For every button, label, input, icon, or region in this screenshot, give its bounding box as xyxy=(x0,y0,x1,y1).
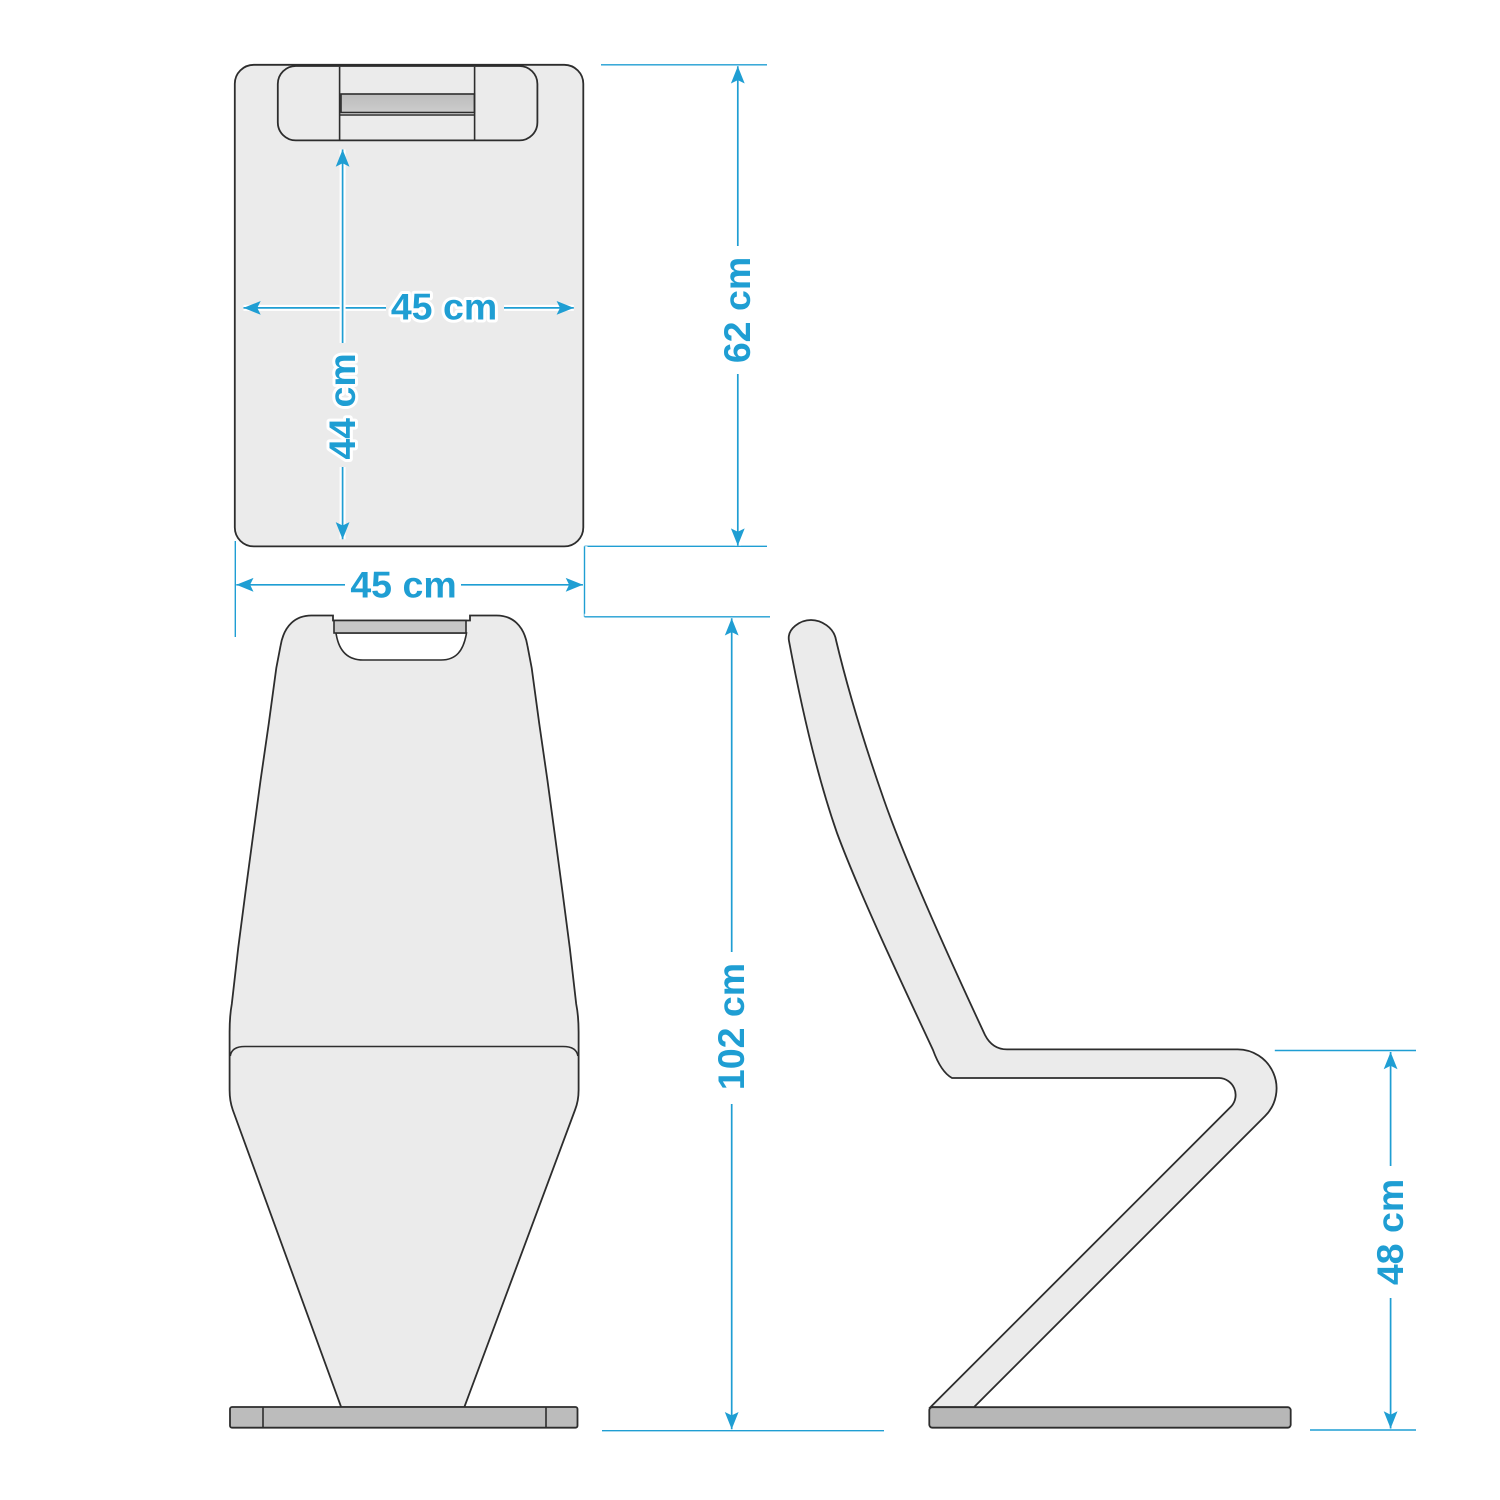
svg-text:44 cm: 44 cm xyxy=(321,353,363,459)
svg-text:48 cm: 48 cm xyxy=(1369,1179,1411,1285)
svg-text:45 cm: 45 cm xyxy=(350,564,456,606)
svg-text:45 cm: 45 cm xyxy=(391,285,497,327)
svg-text:102 cm: 102 cm xyxy=(710,963,752,1090)
svg-text:62 cm: 62 cm xyxy=(716,257,758,363)
